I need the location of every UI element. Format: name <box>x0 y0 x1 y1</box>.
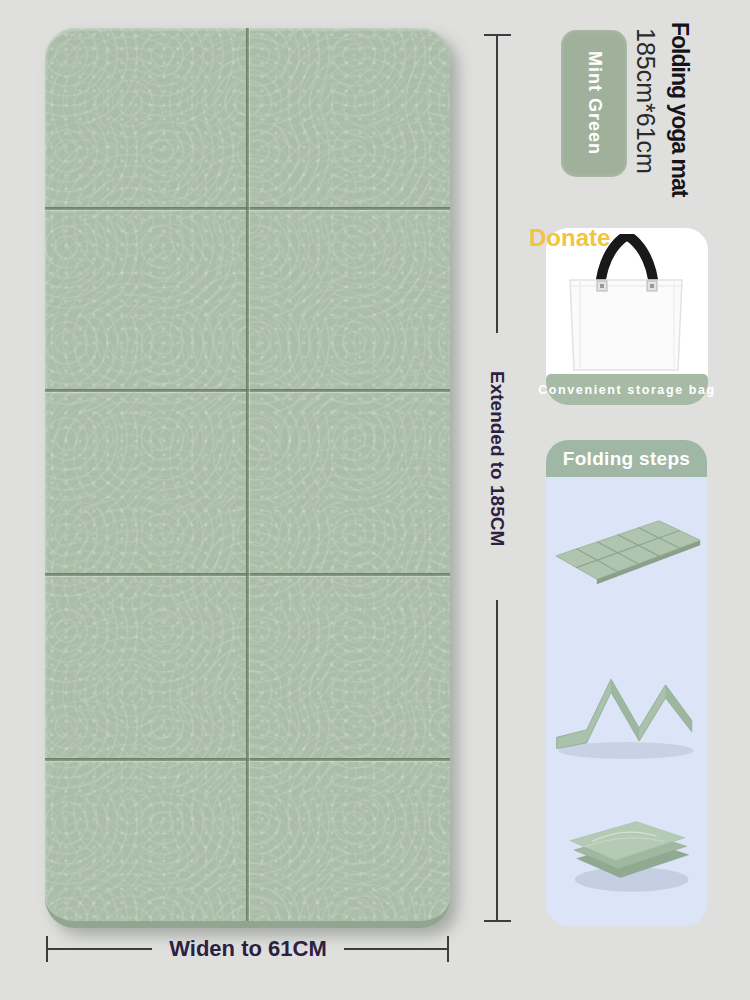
step-2-accordion-image <box>551 642 703 767</box>
color-badge: Mint Green <box>561 30 627 177</box>
length-dimension-cap-bottom <box>484 920 511 922</box>
product-detail-image: Extended to 185CM Widen to 61CM Folding … <box>0 0 750 1000</box>
width-dimension-cap-right <box>447 936 449 962</box>
step-1-flat-mat-image <box>550 507 706 595</box>
storage-caption-label: Convenient storage bag <box>538 383 716 397</box>
storage-caption-bar: Convenient storage bag <box>546 374 708 405</box>
length-dimension-label: Extended to 185CM <box>482 368 512 550</box>
donate-label: Donate <box>529 224 610 252</box>
product-size: 185cm*61cm <box>631 28 660 186</box>
width-dimension-label: Widen to 61CM <box>152 933 344 965</box>
length-dimension-line-bottom <box>496 600 498 920</box>
folding-steps-header: Folding steps <box>546 440 707 477</box>
folding-steps-panel: Folding steps <box>546 440 707 926</box>
folding-steps-title: Folding steps <box>563 448 690 470</box>
product-title: Folding yoga mat <box>666 22 693 214</box>
yoga-mat-image <box>45 28 450 928</box>
tote-bag-icon <box>558 234 696 376</box>
color-badge-label: Mint Green <box>584 51 605 155</box>
step-3-stack-image <box>556 795 698 907</box>
width-dimension-line-right <box>344 948 447 950</box>
width-dimension-line-left <box>48 948 152 950</box>
length-dimension-line-top <box>496 35 498 333</box>
vertical-fold-line <box>246 28 249 921</box>
folding-steps-body <box>546 477 707 926</box>
